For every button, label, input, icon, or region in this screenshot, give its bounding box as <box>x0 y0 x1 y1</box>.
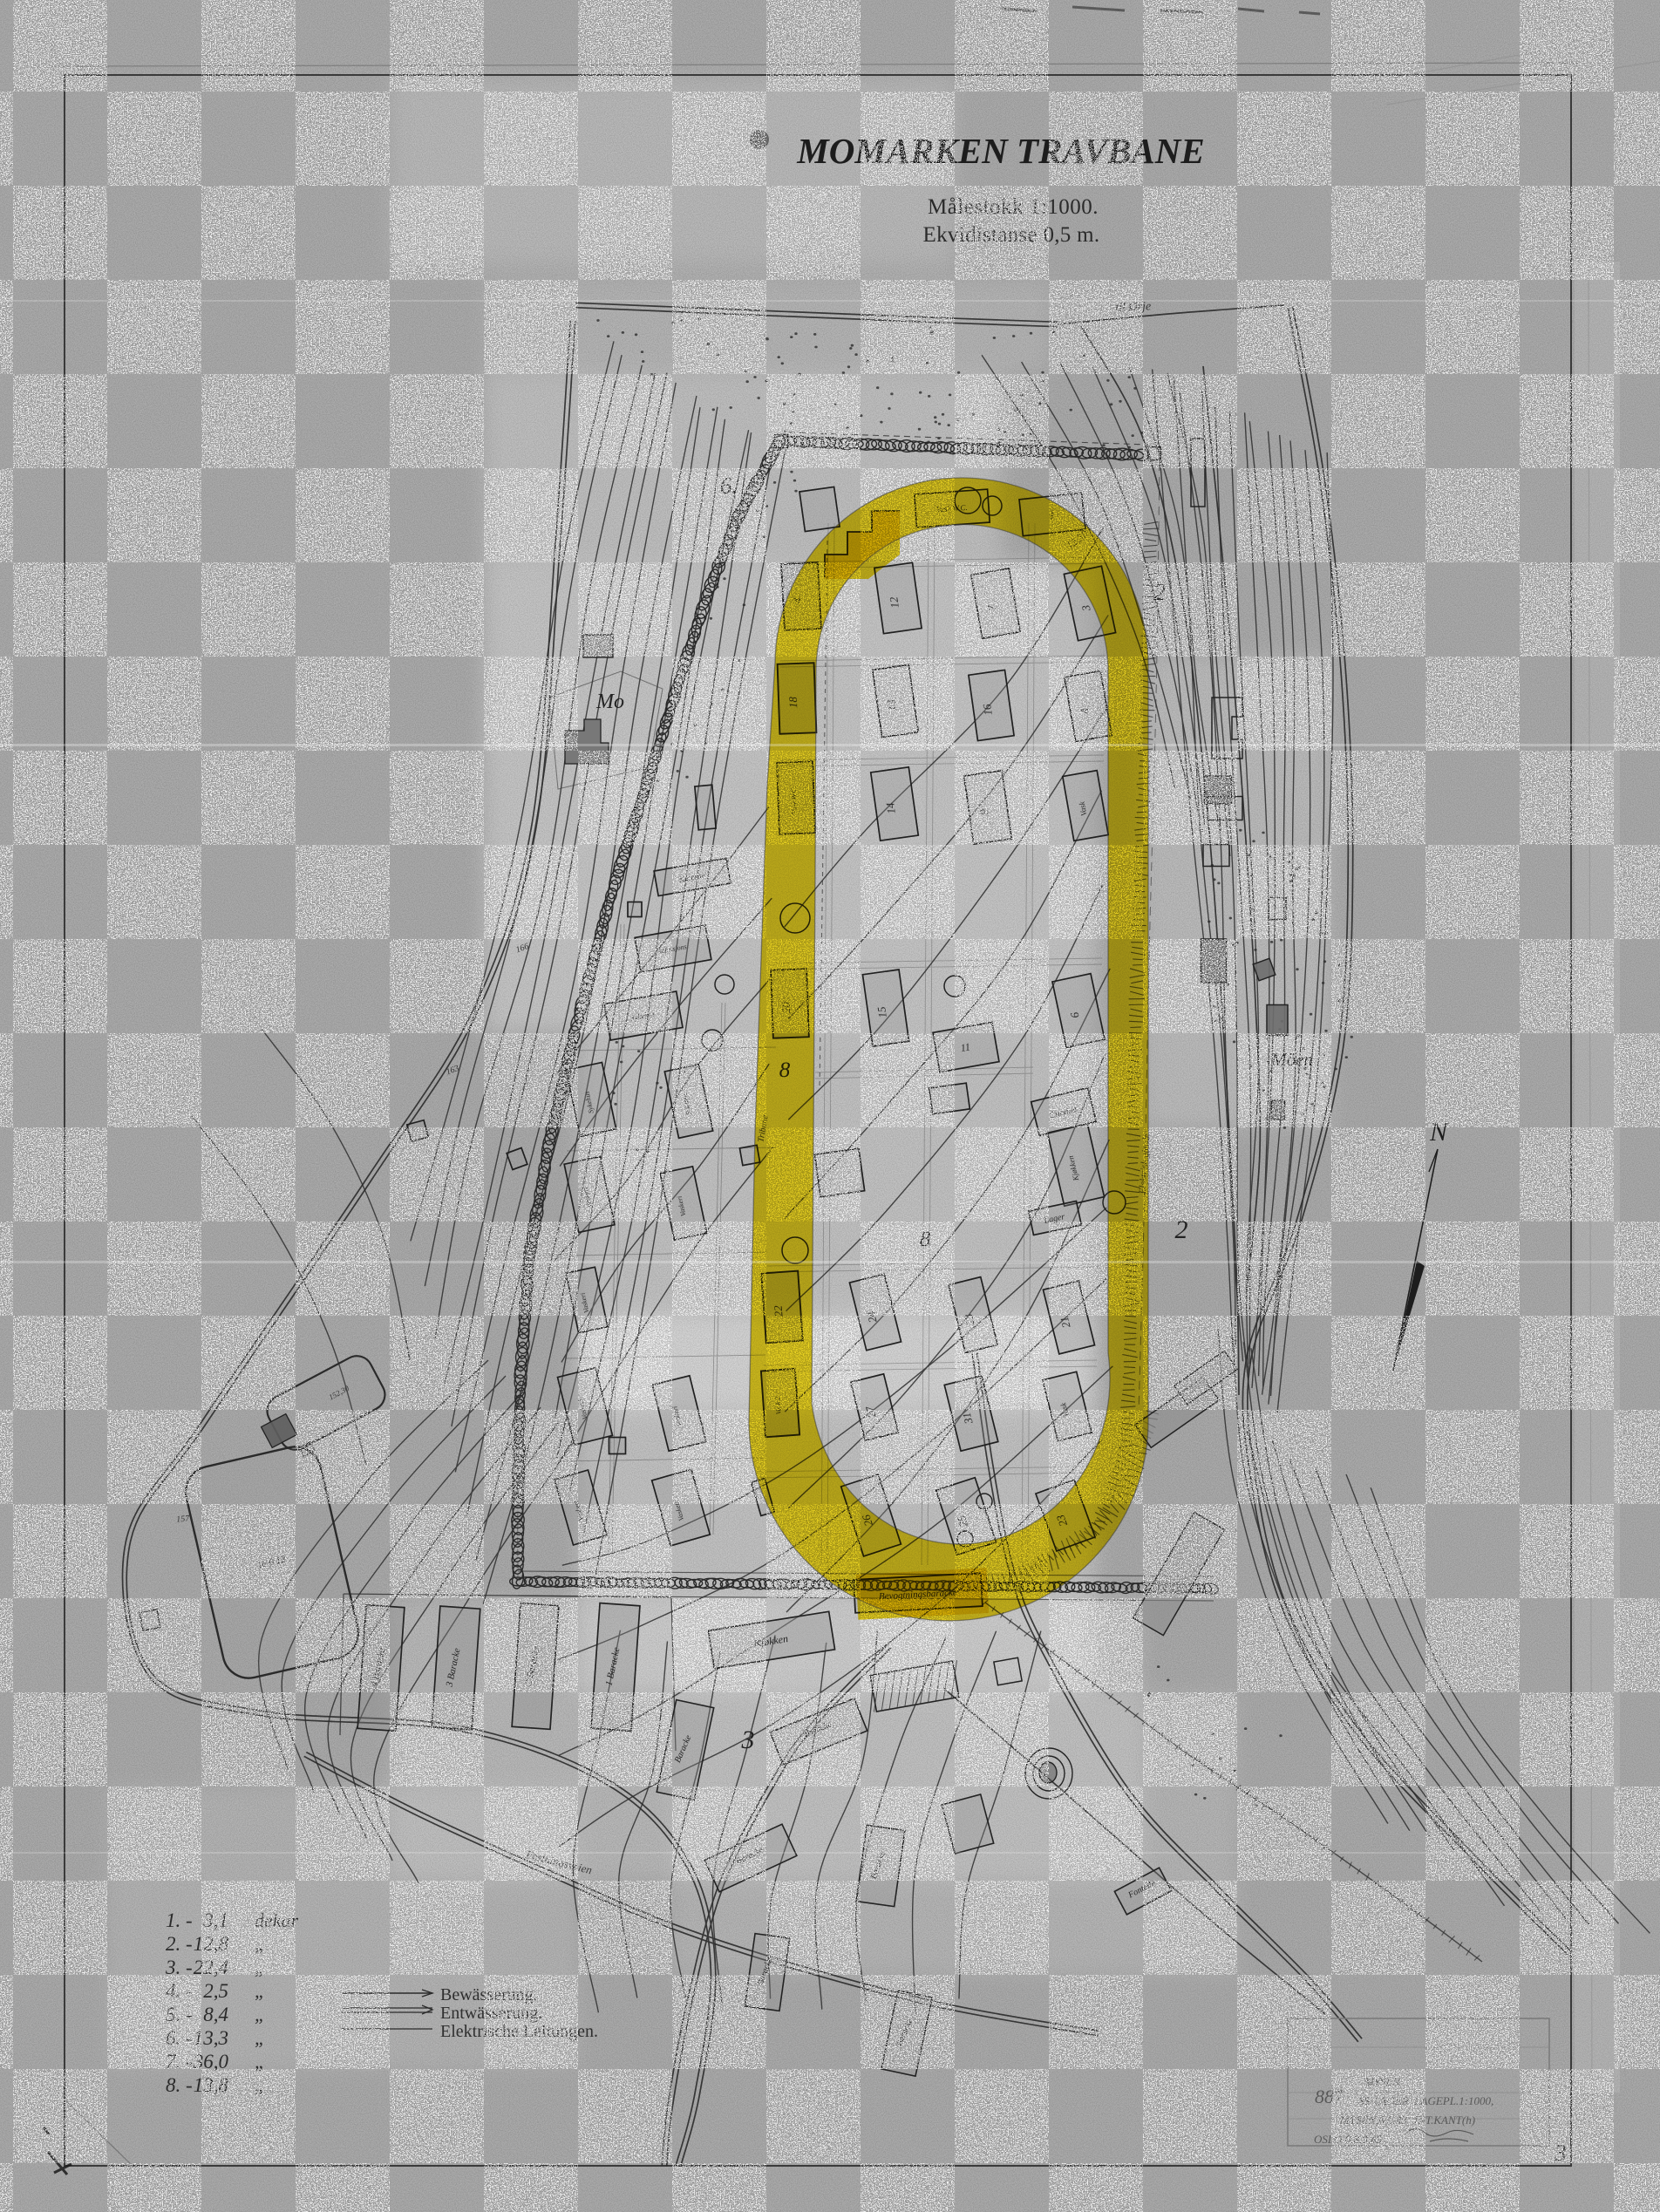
svg-text:14: 14 <box>883 801 898 814</box>
svg-text:12: 12 <box>887 596 901 609</box>
svg-text:15: 15 <box>874 1005 889 1018</box>
svg-text:„: „ <box>255 2004 265 2025</box>
svg-text:2. -: 2. - <box>166 1933 193 1955</box>
svg-text:MOMARKEN TRAVBANE: MOMARKEN TRAVBANE <box>796 131 1204 171</box>
svg-text:„: „ <box>255 2027 265 2049</box>
svg-text:8. -: 8. - <box>166 2074 193 2096</box>
svg-text:„: „ <box>255 1980 265 2002</box>
svg-text:157: 157 <box>176 1514 191 1524</box>
svg-text:8,4: 8,4 <box>203 2004 228 2025</box>
svg-text:16: 16 <box>980 703 995 716</box>
svg-text:3: 3 <box>741 1725 755 1754</box>
svg-text:Mo: Mo <box>595 691 624 713</box>
svg-text:1. -: 1. - <box>166 1909 193 1931</box>
svg-text:2,5: 2,5 <box>203 1980 228 2002</box>
